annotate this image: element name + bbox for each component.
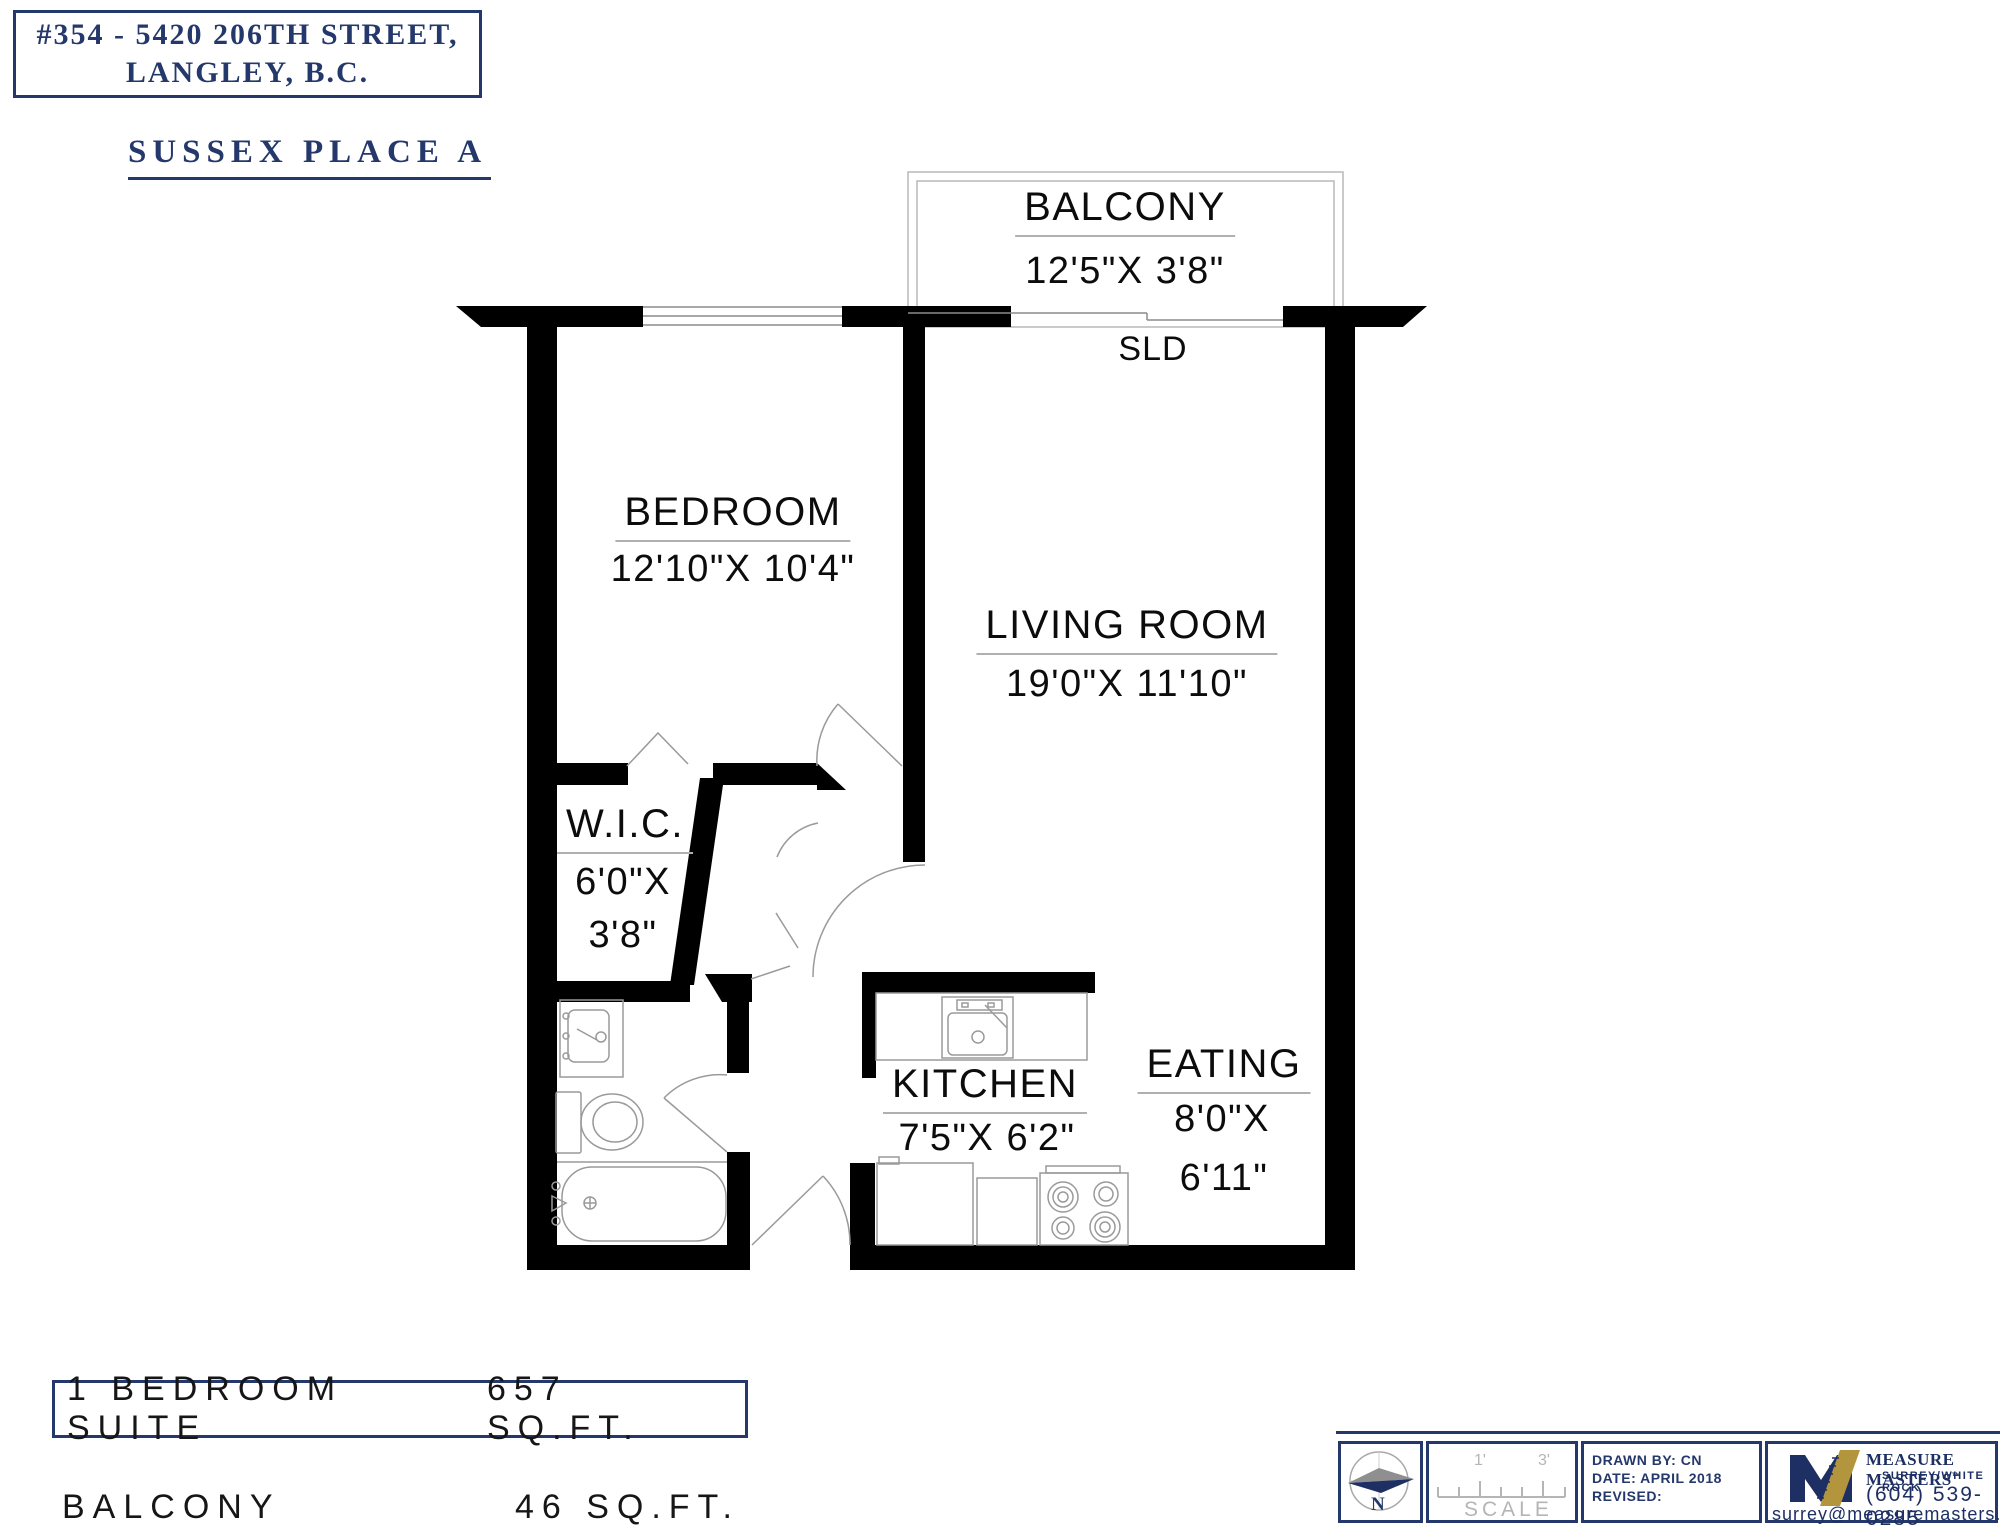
living-room-dims: 19'0"X 11'10"	[1006, 663, 1248, 706]
kitchen-counter	[876, 993, 1087, 1060]
toilet	[556, 1092, 643, 1153]
bathroom-fixtures	[552, 1000, 727, 1241]
kitchen-dims: 7'5"X 6'2"	[899, 1117, 1076, 1160]
balcony-summary-area: 46 SQ.FT.	[515, 1488, 740, 1527]
eating-dims-1: 8'0"X	[1174, 1098, 1270, 1141]
scale-caption: SCALE	[1464, 1498, 1553, 1522]
scale-tick-label-1: 1'	[1474, 1452, 1486, 1470]
balcony-summary-row: BALCONY 46 SQ.FT.	[52, 1488, 748, 1527]
suite-summary-area: 657 SQ.FT.	[487, 1370, 731, 1448]
address-line2: LANGLEY, B.C.	[126, 54, 369, 92]
revised-line: REVISED:	[1592, 1488, 1662, 1504]
bathroom-sink	[560, 1000, 623, 1077]
sliding-door-label: SLD	[1118, 330, 1187, 369]
compass-n-label: N	[1371, 1494, 1385, 1516]
titleblock-top-rule	[1336, 1431, 2000, 1434]
date-line: DATE: APRIL 2018	[1592, 1470, 1722, 1486]
wic-dims-1: 6'0"X	[575, 861, 671, 904]
living-room-label: LIVING ROOM	[976, 603, 1277, 655]
plan-subtitle: SUSSEX PLACE A	[128, 134, 491, 180]
eating-label: EATING	[1138, 1042, 1311, 1094]
floor-plan-drawing	[0, 0, 2000, 1528]
suite-summary-box: 1 BEDROOM SUITE 657 SQ.FT.	[52, 1380, 748, 1438]
address-line1: #354 - 5420 206TH STREET,	[37, 16, 459, 54]
door-arcs	[627, 704, 925, 1245]
fridge	[877, 1157, 973, 1245]
address-title-box: #354 - 5420 206TH STREET, LANGLEY, B.C.	[13, 10, 482, 98]
bedroom-window	[643, 307, 842, 325]
logo-email: surrey@measuremasters.ca	[1772, 1504, 2000, 1525]
eating-dims-2: 6'11"	[1180, 1157, 1269, 1200]
balcony-dims: 12'5"X 3'8"	[1025, 250, 1225, 293]
drawn-by-line: DRAWN BY: CN	[1592, 1452, 1702, 1468]
balcony-summary-label: BALCONY	[62, 1488, 281, 1527]
bathtub	[552, 1167, 726, 1241]
bedroom-dims: 12'10"X 10'4"	[611, 548, 856, 591]
kitchen-label: KITCHEN	[883, 1062, 1087, 1114]
balcony-label: BALCONY	[1015, 185, 1235, 237]
kitchen-sink	[942, 997, 1013, 1058]
suite-summary-label: 1 BEDROOM SUITE	[67, 1370, 487, 1448]
floor-plan-page: #354 - 5420 206TH STREET, LANGLEY, B.C. …	[0, 0, 2000, 1528]
wic-dims-2: 3'8"	[588, 914, 657, 957]
wic-label: W.I.C.	[557, 802, 693, 854]
scale-tick-label-2: 3'	[1538, 1452, 1550, 1470]
kitchen-cabinet	[977, 1178, 1037, 1245]
sliding-door	[908, 313, 1283, 320]
stove	[1040, 1166, 1128, 1245]
bedroom-label: BEDROOM	[615, 490, 850, 542]
